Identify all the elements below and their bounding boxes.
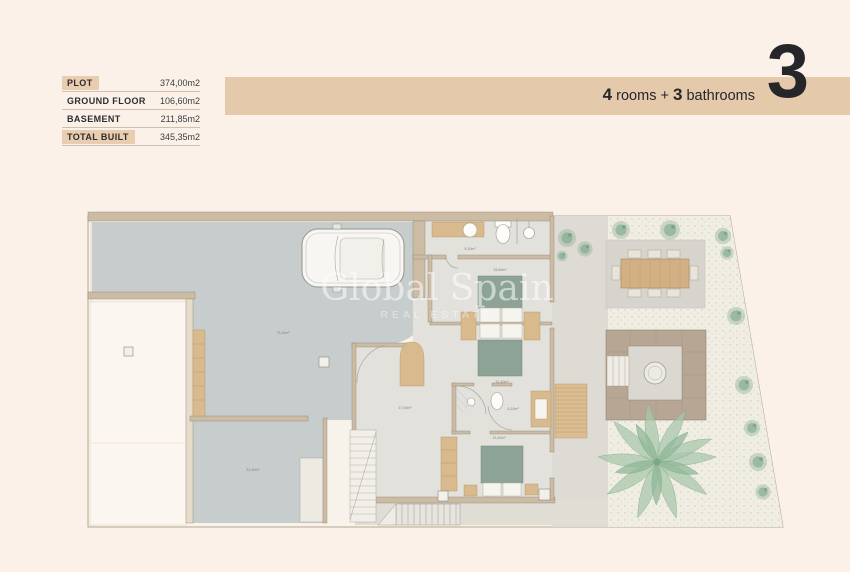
wardrobe-left [193, 330, 205, 416]
area-label: 9,10m² [464, 247, 476, 251]
pillow [483, 483, 501, 496]
toilet-icon [491, 393, 503, 410]
watermark-title: Global Spain [320, 268, 553, 309]
area-label: 12,40m² [495, 380, 509, 384]
chair [690, 266, 698, 280]
chair [667, 250, 680, 258]
empty-yard [90, 302, 186, 525]
chair [667, 289, 680, 297]
bed-3 [481, 446, 523, 483]
area-label: 73,40m² [276, 331, 290, 335]
area-label: 13,40m² [492, 436, 506, 440]
sink-icon [463, 223, 477, 237]
chair [612, 266, 620, 280]
wardrobe-bedroom3 [441, 437, 457, 491]
floor-plan: 73,40m² 31,40m² 9,10m² 15,60m² 17,00m² 5… [0, 0, 850, 572]
area-label: 5,10m² [507, 407, 519, 411]
bed-2 [478, 340, 522, 376]
nightstand [525, 484, 538, 495]
pillow [502, 324, 522, 338]
area-label: 17,00m² [398, 406, 412, 410]
area-label: 31,40m² [246, 468, 260, 472]
nightstand [524, 312, 540, 340]
basin-icon [524, 228, 535, 239]
pillow [480, 324, 500, 338]
side-path [552, 216, 608, 527]
car-mirror [333, 224, 341, 229]
nightstand [464, 485, 477, 496]
chair [628, 289, 641, 297]
steps [607, 356, 629, 386]
pillow [503, 483, 521, 496]
pergola [606, 330, 706, 420]
pillow [502, 308, 522, 322]
arch-cabinet [400, 342, 424, 386]
garage-door [300, 458, 323, 522]
chair [628, 250, 641, 258]
toilet-icon [496, 225, 510, 244]
watermark-subtitle: REAL ESTATE [380, 309, 493, 321]
chair [648, 250, 661, 258]
chair [648, 289, 661, 297]
